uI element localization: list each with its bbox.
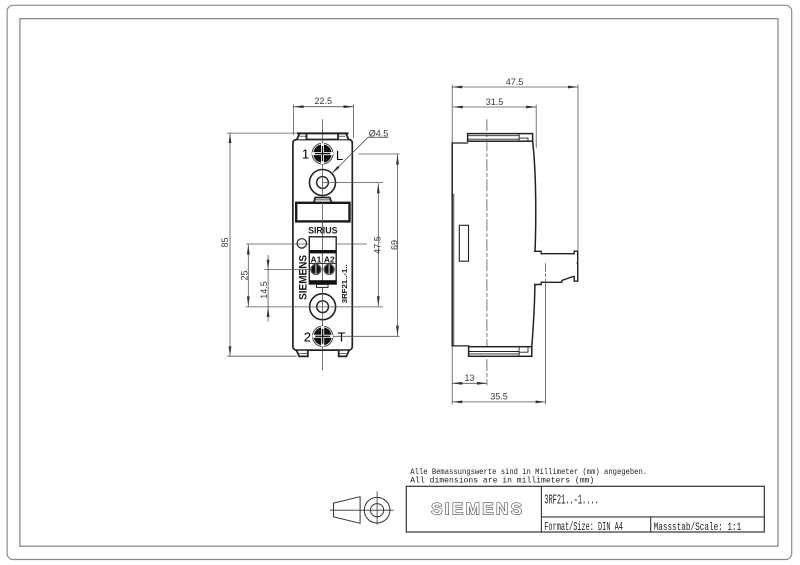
svg-text:SIEMENS: SIEMENS [431,500,524,519]
svg-text:25: 25 [239,270,249,280]
svg-text:31.5: 31.5 [486,97,504,107]
svg-text:SIEMENS: SIEMENS [297,255,310,300]
svg-text:3RF21..-1..: 3RF21..-1.. [340,265,349,304]
svg-text:22.5: 22.5 [315,96,333,106]
svg-text:SIRIUS: SIRIUS [308,226,337,236]
svg-text:Format/Size: DIN A4: Format/Size: DIN A4 [544,520,623,533]
svg-text:3RF21..-1....: 3RF21..-1.... [544,493,599,508]
svg-text:47.5: 47.5 [506,77,524,87]
svg-text:A1: A1 [310,254,321,264]
svg-text:T: T [338,329,346,344]
svg-text:47.5: 47.5 [373,236,383,254]
svg-text:13: 13 [464,373,474,383]
svg-text:Ø4.5: Ø4.5 [369,128,389,138]
svg-text:Massstab/Scale: 1:1: Massstab/Scale: 1:1 [654,520,742,533]
svg-text:69: 69 [389,240,399,250]
svg-text:14.5: 14.5 [259,281,269,299]
svg-text:35.5: 35.5 [490,392,508,402]
svg-text:85: 85 [220,237,230,247]
svg-text:All dimensions are in millimet: All dimensions are in millimeters (mm) [410,475,594,485]
svg-text:L: L [336,148,343,163]
svg-text:2: 2 [304,329,311,344]
svg-text:1: 1 [302,146,309,161]
svg-text:A2: A2 [324,254,335,264]
